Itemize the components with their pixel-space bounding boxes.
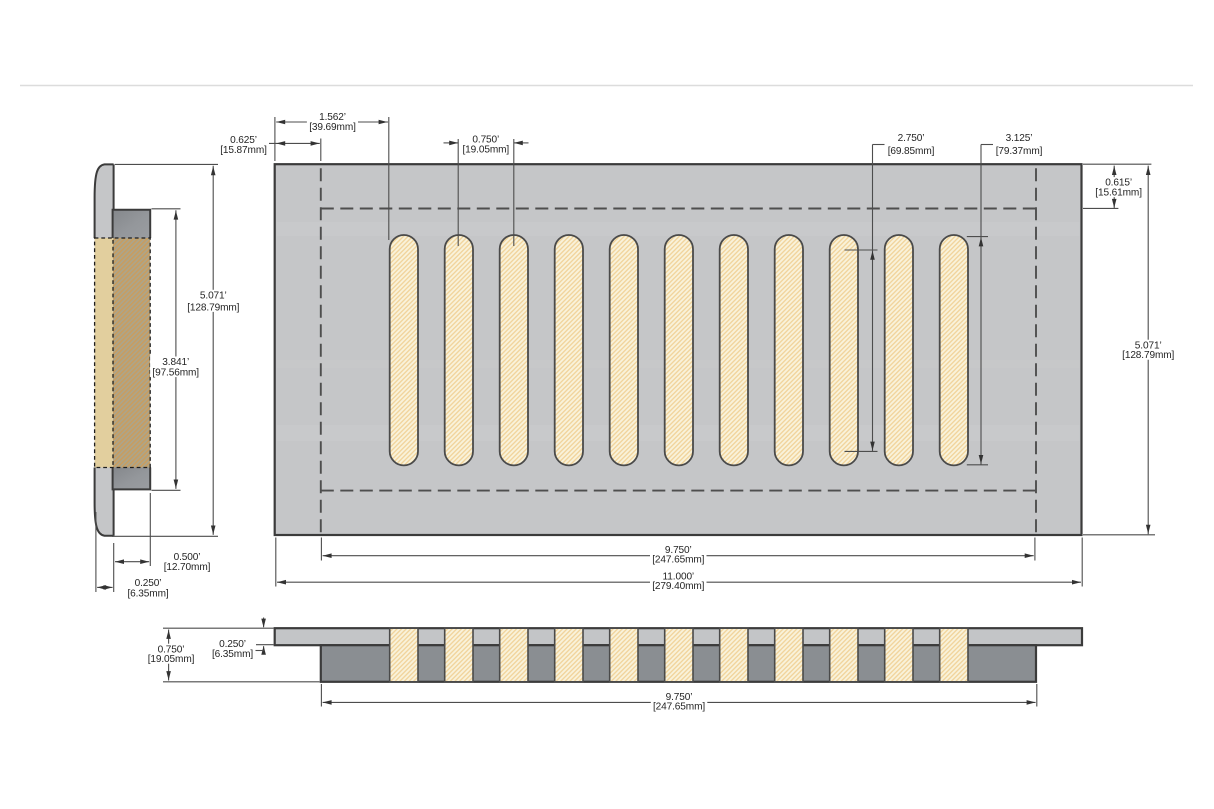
svg-text:[128.79mm]: [128.79mm] (1122, 350, 1174, 361)
svg-text:[97.56mm]: [97.56mm] (152, 368, 199, 379)
svg-text:[12.70mm]: [12.70mm] (164, 562, 211, 573)
svg-text:[128.79mm]: [128.79mm] (187, 302, 239, 313)
svg-text:5.071’: 5.071’ (200, 290, 227, 301)
svg-text:[15.87mm]: [15.87mm] (220, 145, 267, 156)
svg-text:[279.40mm]: [279.40mm] (652, 581, 704, 592)
svg-text:[79.37mm]: [79.37mm] (996, 146, 1043, 157)
svg-text:[69.85mm]: [69.85mm] (888, 146, 935, 157)
svg-text:3.125’: 3.125’ (1006, 133, 1033, 144)
svg-text:[19.05mm]: [19.05mm] (148, 654, 195, 665)
svg-text:[19.05mm]: [19.05mm] (462, 144, 509, 155)
svg-text:0.250’: 0.250’ (135, 578, 162, 589)
svg-text:[247.65mm]: [247.65mm] (652, 555, 704, 566)
svg-text:[247.65mm]: [247.65mm] (653, 702, 705, 713)
svg-text:2.750’: 2.750’ (898, 133, 925, 144)
svg-text:[6.35mm]: [6.35mm] (127, 589, 168, 600)
svg-text:3.841’: 3.841’ (162, 357, 189, 368)
svg-text:[39.69mm]: [39.69mm] (309, 122, 356, 133)
svg-text:[6.35mm]: [6.35mm] (212, 649, 253, 660)
svg-text:[15.61mm]: [15.61mm] (1095, 188, 1142, 199)
